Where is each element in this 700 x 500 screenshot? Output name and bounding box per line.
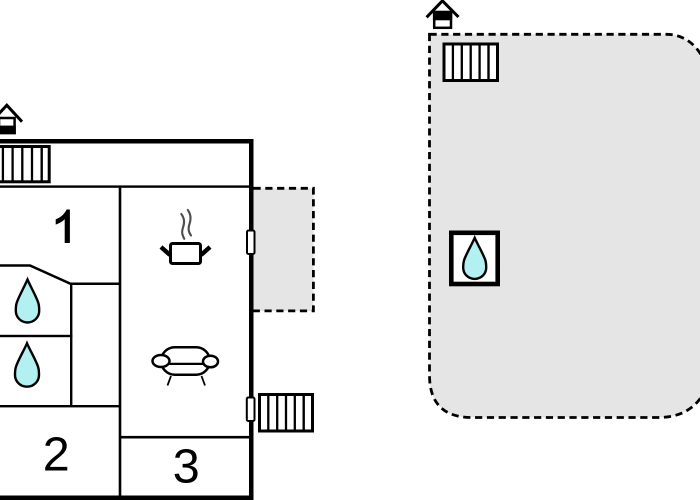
svg-text:3: 3 [173,439,200,493]
svg-text:2: 2 [43,428,70,482]
